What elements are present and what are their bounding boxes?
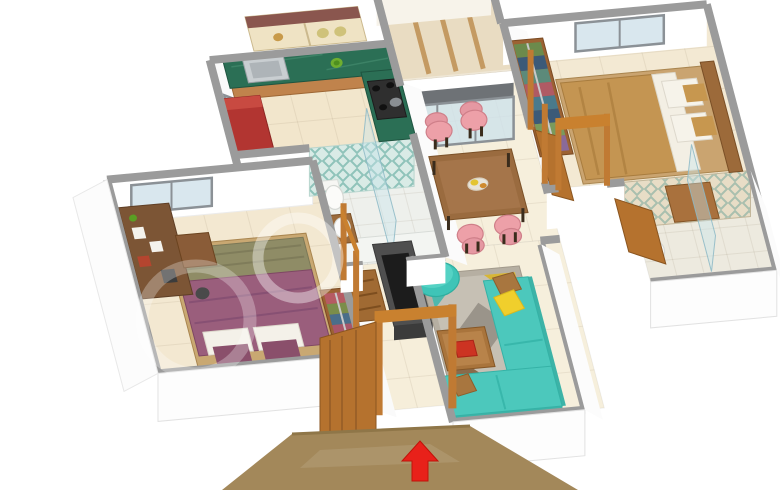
int-face-bath1-south (407, 257, 446, 287)
floorplan-3d-render (0, 0, 780, 490)
bedroom2-door-post (528, 50, 534, 130)
bed2-cushion-tan (682, 83, 708, 102)
bedroom2-door-post (542, 104, 548, 184)
wall-top (540, 239, 559, 241)
kitchen-sink-basin (249, 61, 282, 79)
floorplan-canvas (0, 0, 780, 490)
entrance-frame-post (448, 304, 456, 408)
coffee-table-book (454, 340, 477, 357)
bedroom1-door-post (353, 251, 359, 328)
